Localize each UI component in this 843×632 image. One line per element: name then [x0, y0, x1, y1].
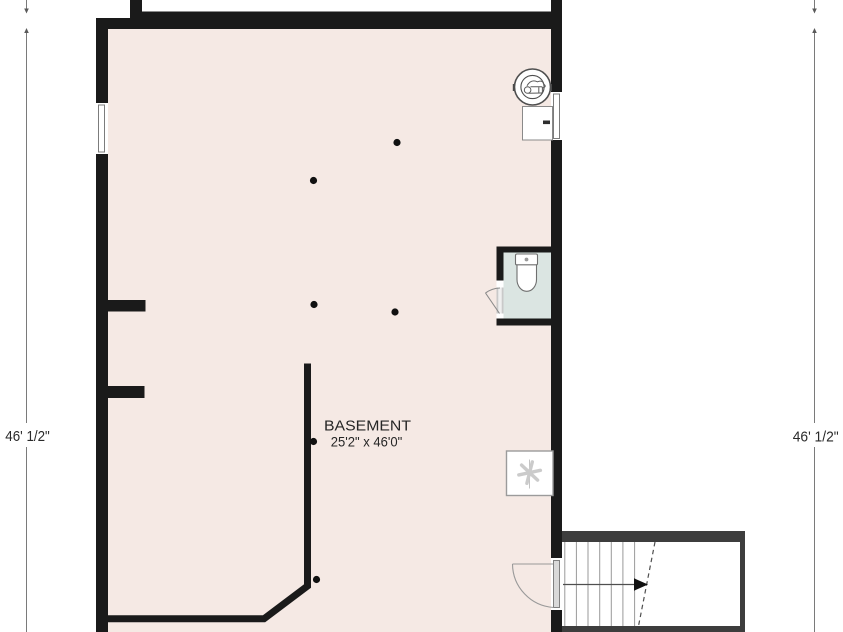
svg-text:25'2" x 46'0": 25'2" x 46'0" [331, 435, 403, 450]
svg-text:46' 1/2": 46' 1/2" [793, 428, 839, 445]
svg-text:46' 1/2": 46' 1/2" [5, 428, 50, 445]
svg-text:BASEMENT: BASEMENT [324, 419, 411, 435]
